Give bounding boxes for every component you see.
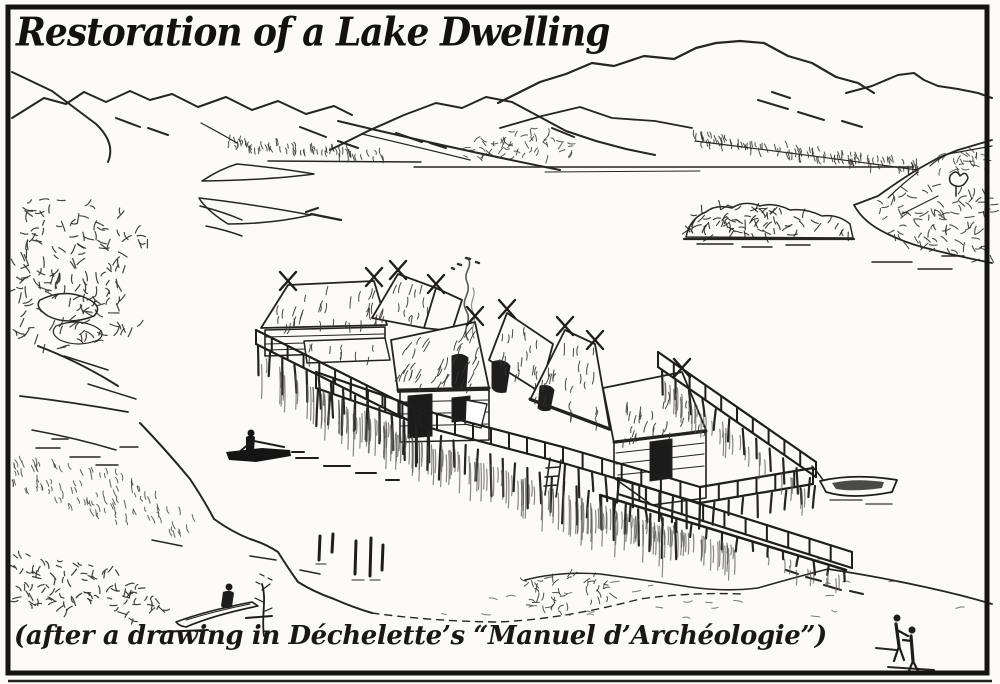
island-reflection [697,244,810,247]
far-shoreline [268,161,913,167]
cliff-rock-edge-2 [20,396,128,412]
shore-figure-2-head [909,627,916,634]
mountain-range-left [12,91,352,118]
cliff-top [12,72,110,162]
moored-boat-reflection [830,500,892,504]
illustration-plate: Restoration of a Lake Dwelling (after a … [0,0,1000,684]
plate-title: Restoration of a Lake Dwelling [16,10,609,55]
water-dashes-left [36,439,138,465]
right-shore-reflection [872,256,964,269]
seated-figure-head [226,584,233,591]
hut-a-roof [261,281,387,328]
mountain-range-center [330,97,655,155]
island-outline [686,203,853,238]
smoke-dots [452,258,479,269]
seated-figure-body [221,591,234,609]
lake-dwelling-drawing [0,0,1000,684]
canoe-wake [292,452,399,480]
right-beach-edge [828,569,992,604]
shore-figure-2-body [911,636,913,661]
old-pile-stumps [319,534,383,576]
slope-hatch-dashes-right [758,92,862,127]
shore-figure-1-head [894,615,901,622]
paddler-canoe-hull [226,448,291,462]
paddler-head [248,430,255,437]
shore-spit-1 [202,164,314,181]
right-shore-outline [854,140,992,263]
cliff-rock-edge-3 [32,430,116,450]
mountain-range-right [846,73,992,98]
cliff-rock-edge-1 [38,346,118,386]
shore-figure-1-body [896,624,899,646]
plate-caption: (after a drawing in Déchelette’s “Manuel… [14,621,827,651]
waterline-dashed [372,594,742,622]
dead-snag [306,208,341,220]
far-shoreline-2 [545,171,700,172]
left-beach-marks [152,540,320,574]
